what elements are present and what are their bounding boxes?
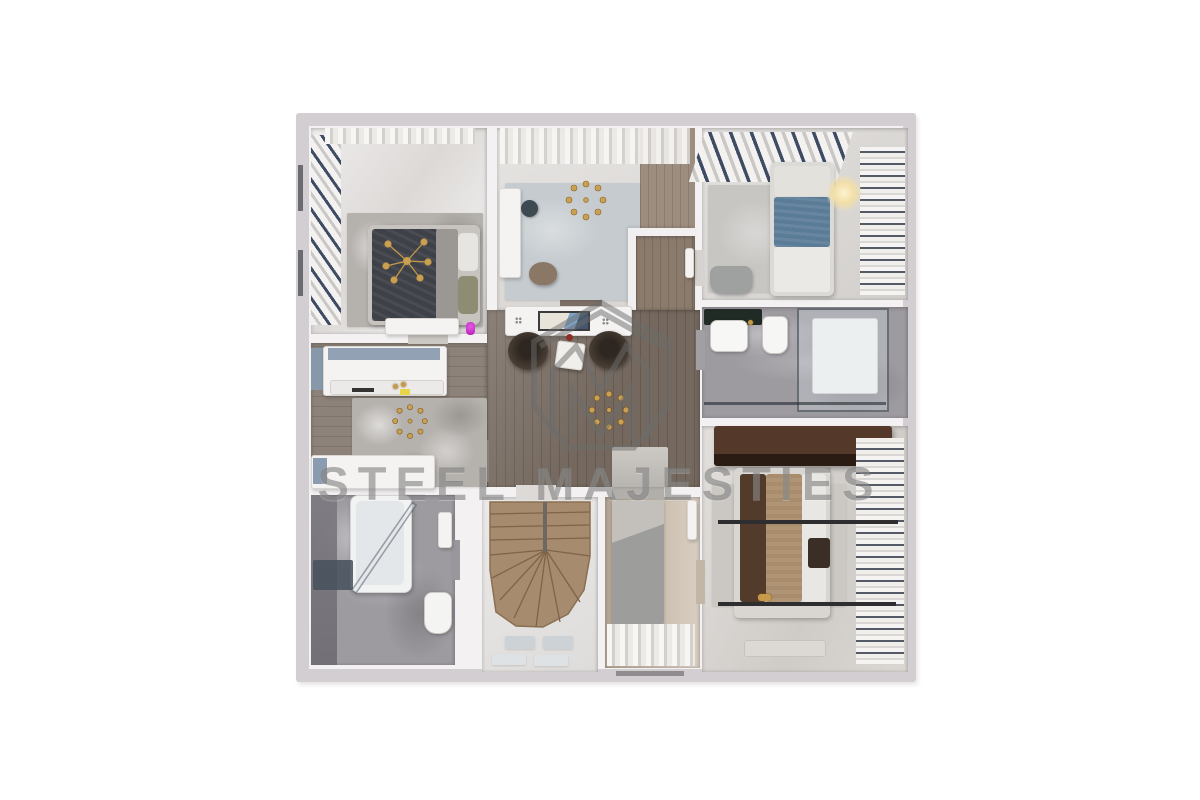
window-slot-left-2	[298, 250, 303, 296]
wardrobe-blue-band-dressing	[328, 348, 440, 360]
armchair-study	[529, 262, 557, 285]
sink-bathroomR	[710, 320, 748, 352]
yellow-note-dressing	[400, 389, 410, 395]
gold-items-dressing-2	[401, 382, 406, 387]
picture-frame-closet	[685, 248, 694, 278]
gold-items-dressing-1	[393, 384, 398, 389]
watermark-text: STEEL MAJESTIES	[317, 456, 882, 511]
flowers-magenta-bedroomTL	[466, 322, 475, 335]
dresser-bedroomTL	[385, 318, 459, 335]
armchair-bedroomTR	[710, 266, 752, 294]
winder-staircase	[488, 500, 594, 632]
curtains-bottom-corridor	[607, 624, 695, 666]
glass-rail-1-bedroomBR	[718, 520, 898, 524]
bed-body-white-bedroomTR	[774, 247, 830, 292]
chandelier-bedroomTL	[378, 232, 436, 290]
counter-dark-slot-dressing	[352, 388, 374, 392]
toilet-bathroomR	[762, 316, 788, 354]
pillow-olive-bedroomTL	[458, 276, 478, 314]
runner-rug-corridor	[612, 500, 664, 624]
floor-plan-render: STEEL MAJESTIES	[0, 0, 1200, 800]
steel-majesties-house-m-logo-icon	[520, 298, 682, 454]
wall-shelf-bathroomBL	[438, 512, 452, 548]
chandelier-dressing	[390, 402, 430, 442]
wardrobe-counter-dressing	[330, 380, 444, 395]
faucet-gold-bathroomR	[748, 320, 753, 325]
door-mat-2-stairroom	[543, 636, 573, 649]
desk-study	[499, 188, 521, 278]
door-opening-hall-bathroom-right	[696, 330, 705, 370]
door-mat-1-stairroom	[505, 636, 535, 649]
shower-fixture-dark-bathroomBL	[313, 560, 353, 590]
chandelier-study	[563, 178, 609, 224]
curtain-top-study	[500, 128, 690, 164]
curtain-left-bedroomTL	[311, 135, 341, 325]
curtain-right-bedroomTR	[860, 145, 905, 295]
window-slot-left-1	[298, 165, 303, 211]
curtain-top-bedroomTL	[325, 128, 475, 144]
bed-pillows-bedroomTR	[774, 166, 830, 196]
door-mat-3-stairroom	[492, 654, 526, 665]
niche-left-dressing	[311, 348, 323, 390]
gold-item-bedroomBR	[758, 594, 771, 601]
door-opening-bedroomTR	[695, 250, 704, 286]
desk-chair-dark-study	[521, 200, 538, 217]
door-opening-corridor-bedroom	[696, 560, 705, 604]
shower-tray-bathroomR	[812, 318, 878, 394]
glass-rail-2-bedroomBR	[718, 602, 896, 606]
dark-object-bedroomBR	[808, 538, 830, 568]
door-opening-bathroom-left	[452, 540, 460, 580]
window-slot-bottom	[616, 671, 684, 676]
bench-bedroomBR	[744, 640, 826, 657]
bed-blanket-blue-bedroomTR	[774, 197, 830, 247]
ceiling-light-glow-bedroomTR	[826, 175, 862, 211]
door-mat-4-stairroom	[534, 655, 568, 666]
glass-rail-bathroomR	[704, 402, 886, 405]
pillow-white-bedroomTL	[458, 233, 478, 271]
bed-blanket-fold-bedroomTL	[436, 229, 458, 321]
toilet-bathroomBL	[424, 592, 452, 634]
